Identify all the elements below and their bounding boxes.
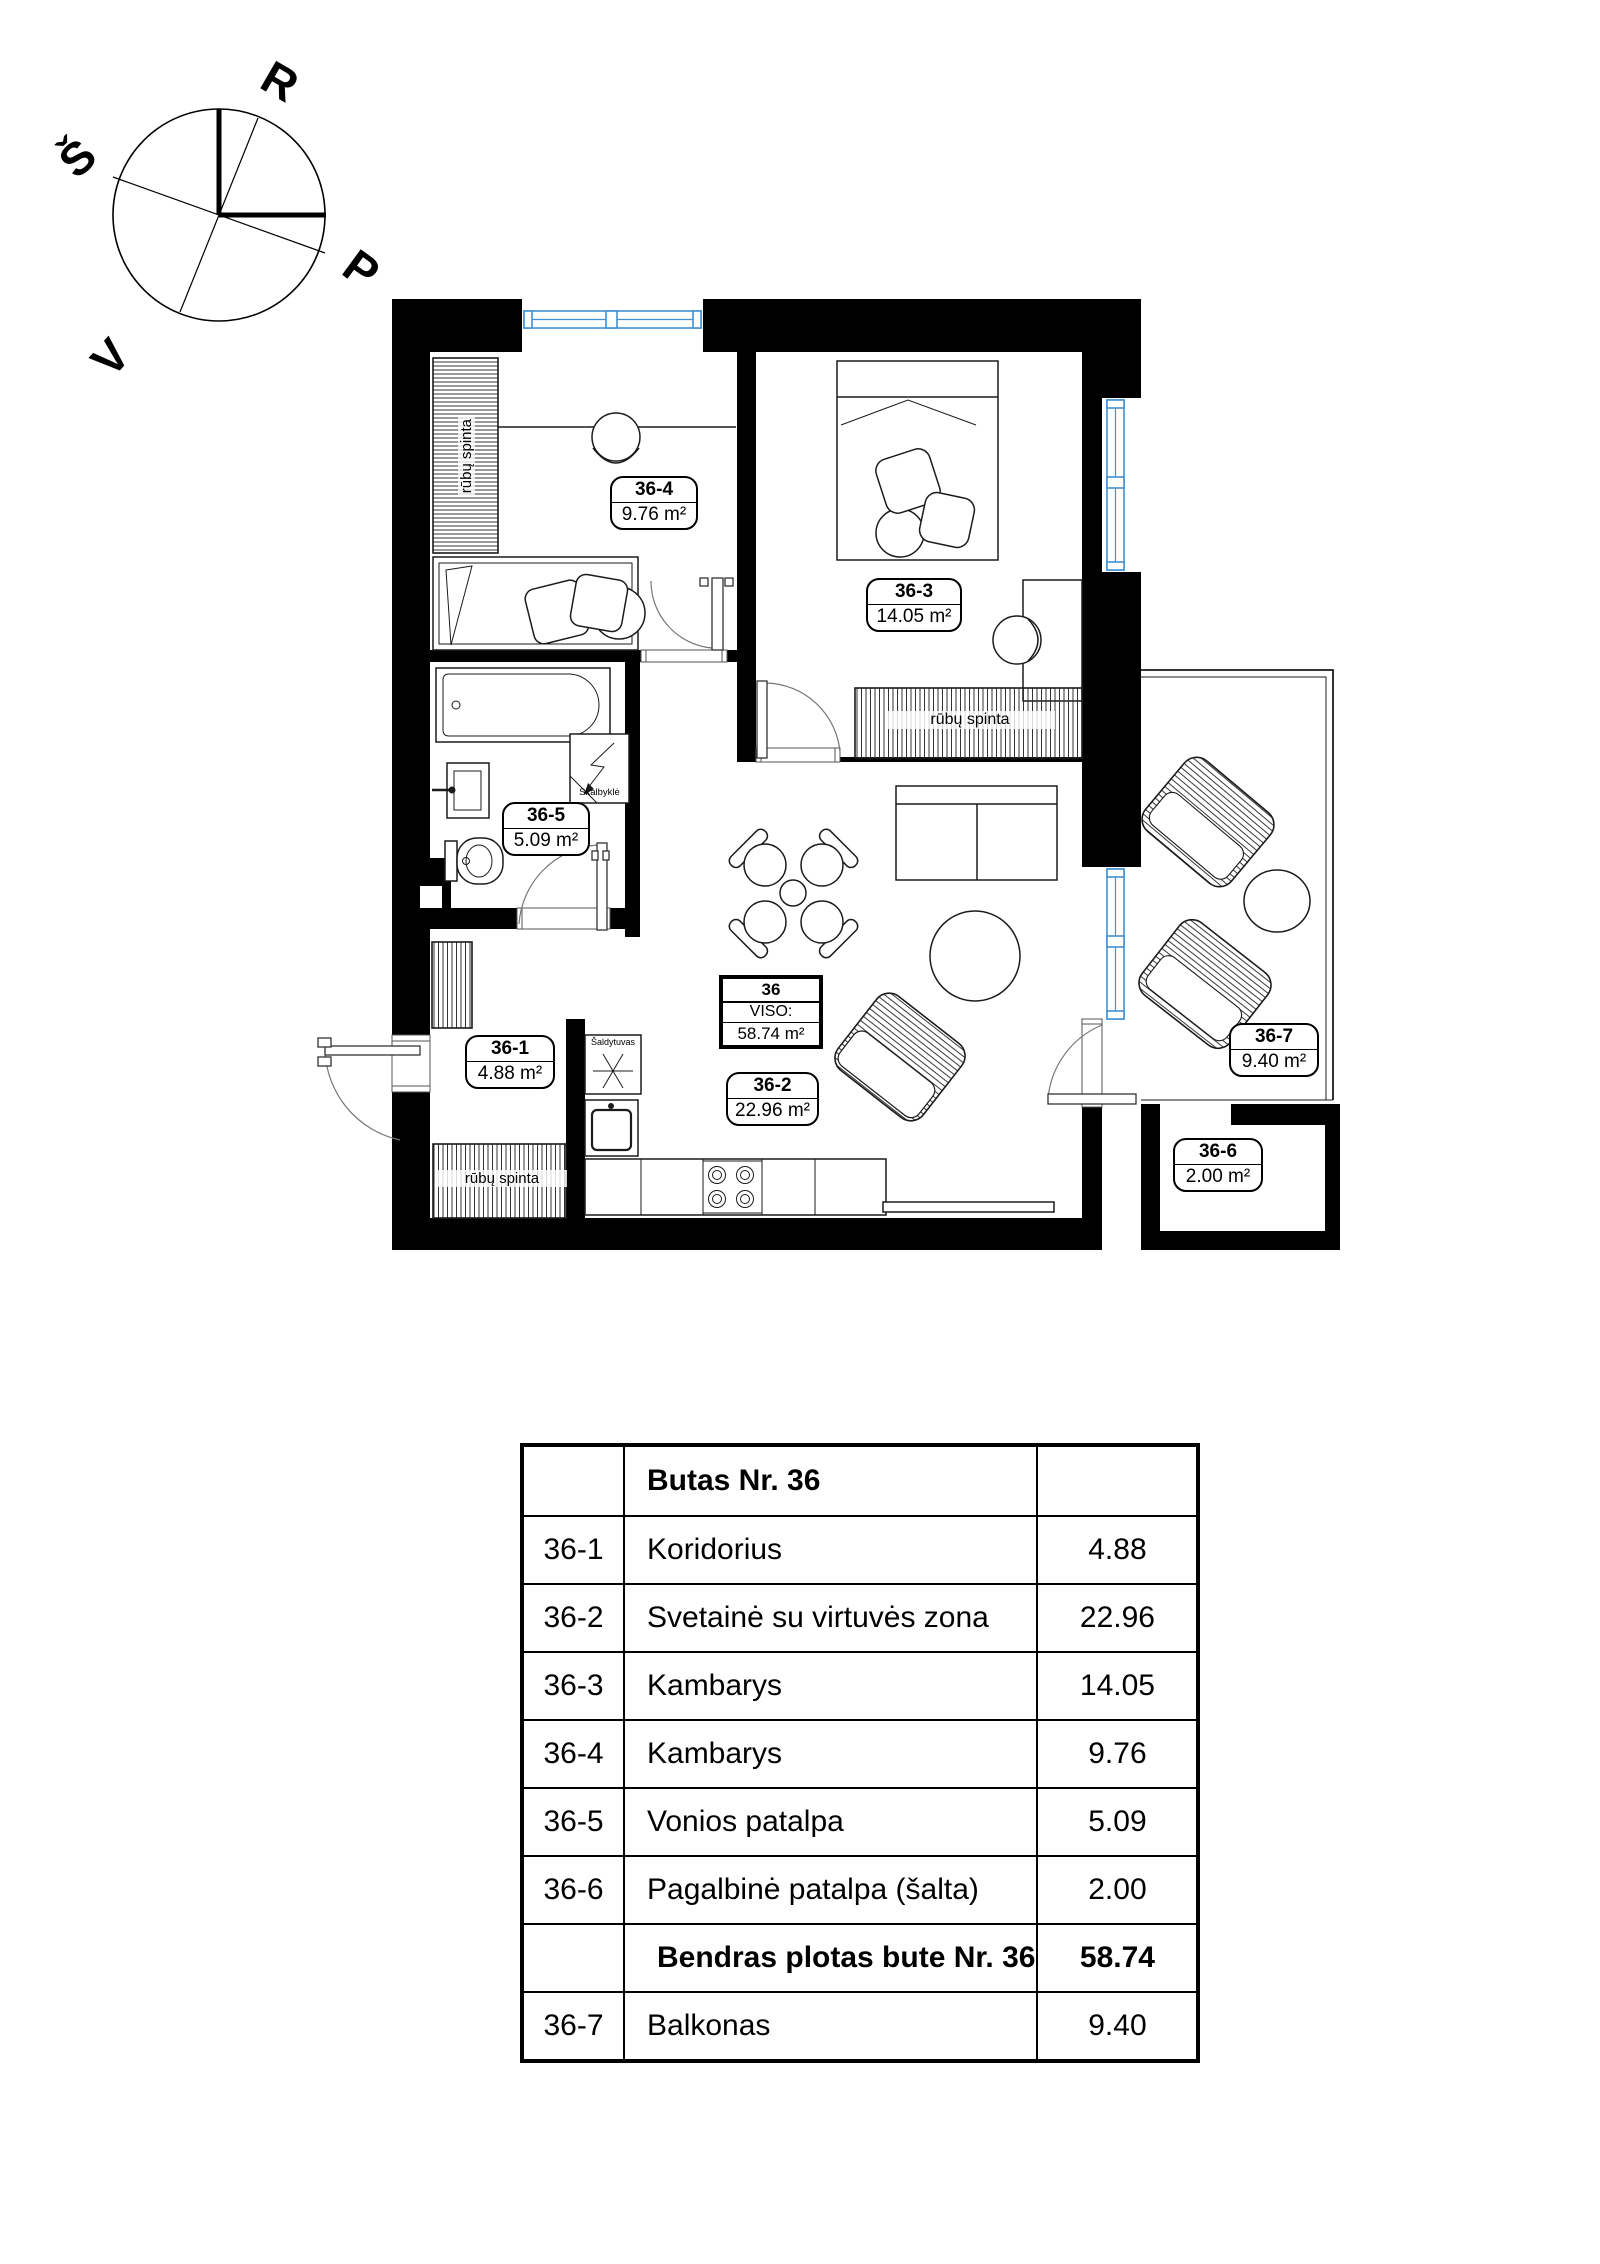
room-label-36-6: 36-6 2.00 m² — [1173, 1138, 1263, 1192]
compass-north-label: Š — [48, 129, 106, 188]
armchair — [829, 987, 972, 1128]
compass-west-label: V — [81, 328, 140, 386]
tv-bench — [883, 1202, 1054, 1212]
table-row: 36-5 Vonios patalpa 5.09 — [522, 1788, 1198, 1856]
table-row: 36-2 Svetainė su virtuvės zona 22.96 — [522, 1584, 1198, 1652]
apartment-total-label: 36 VISO: 58.74 m² — [719, 975, 823, 1049]
compass-rose: R Š P V — [48, 50, 389, 386]
table-row: 36-7 Balkonas 9.40 — [522, 1992, 1198, 2061]
balcony-table — [1244, 870, 1310, 932]
balcony-lounger — [1136, 751, 1281, 893]
wardrobe-label-vertical: rūbų spinta — [437, 363, 495, 549]
kitchen-counter — [585, 1159, 886, 1215]
pouf — [930, 911, 1020, 1001]
wardrobe-label-corridor: rūbų spinta — [437, 1170, 567, 1187]
table-header-row: Butas Nr. 36 — [522, 1445, 1198, 1516]
window-living — [1107, 869, 1124, 1019]
table-total-row: Bendras plotas bute Nr. 36 58.74 — [522, 1924, 1198, 1992]
bathtub — [436, 668, 610, 742]
room-label-36-7: 36-7 9.40 m² — [1229, 1023, 1319, 1077]
floor-plan-page: R Š P V — [0, 0, 1600, 2264]
window-bedroom — [1107, 400, 1124, 570]
window-top — [524, 311, 701, 328]
toilet — [445, 841, 457, 881]
chair-36-4 — [592, 413, 640, 461]
dining-table — [780, 880, 806, 906]
table-title: Butas Nr. 36 — [624, 1445, 1037, 1516]
washer-label: Skalbyklė — [571, 787, 628, 798]
room-label-36-4: 36-4 9.76 m² — [610, 476, 698, 530]
wardrobe-label-bedroom: rūbų spinta — [885, 711, 1055, 729]
compass-south-label: P — [334, 239, 389, 299]
room-label-36-5: 36-5 5.09 m² — [502, 802, 590, 856]
table-row: 36-3 Kambarys 14.05 — [522, 1652, 1198, 1720]
room-label-36-3: 36-3 14.05 m² — [866, 578, 962, 632]
dining-chair — [801, 901, 843, 943]
room-label-36-2: 36-2 22.96 m² — [726, 1072, 819, 1126]
room-36-3-furniture — [837, 361, 1082, 758]
table-row: 36-4 Kambarys 9.76 — [522, 1720, 1198, 1788]
dining-chair — [801, 844, 843, 886]
area-table: Butas Nr. 36 36-1 Koridorius 4.88 36-2 S… — [520, 1443, 1200, 2063]
dining-chair — [744, 844, 786, 886]
table-row: 36-1 Koridorius 4.88 — [522, 1516, 1198, 1584]
chair-36-3 — [993, 616, 1041, 664]
radiator — [432, 942, 472, 1028]
fridge-label: Šaldytuvas — [586, 1037, 640, 1047]
table-row: 36-6 Pagalbinė patalpa (šalta) 2.00 — [522, 1856, 1198, 1924]
room-label-36-1: 36-1 4.88 m² — [465, 1035, 555, 1089]
dining-chair — [744, 901, 786, 943]
compass-east-label: R — [253, 50, 308, 112]
